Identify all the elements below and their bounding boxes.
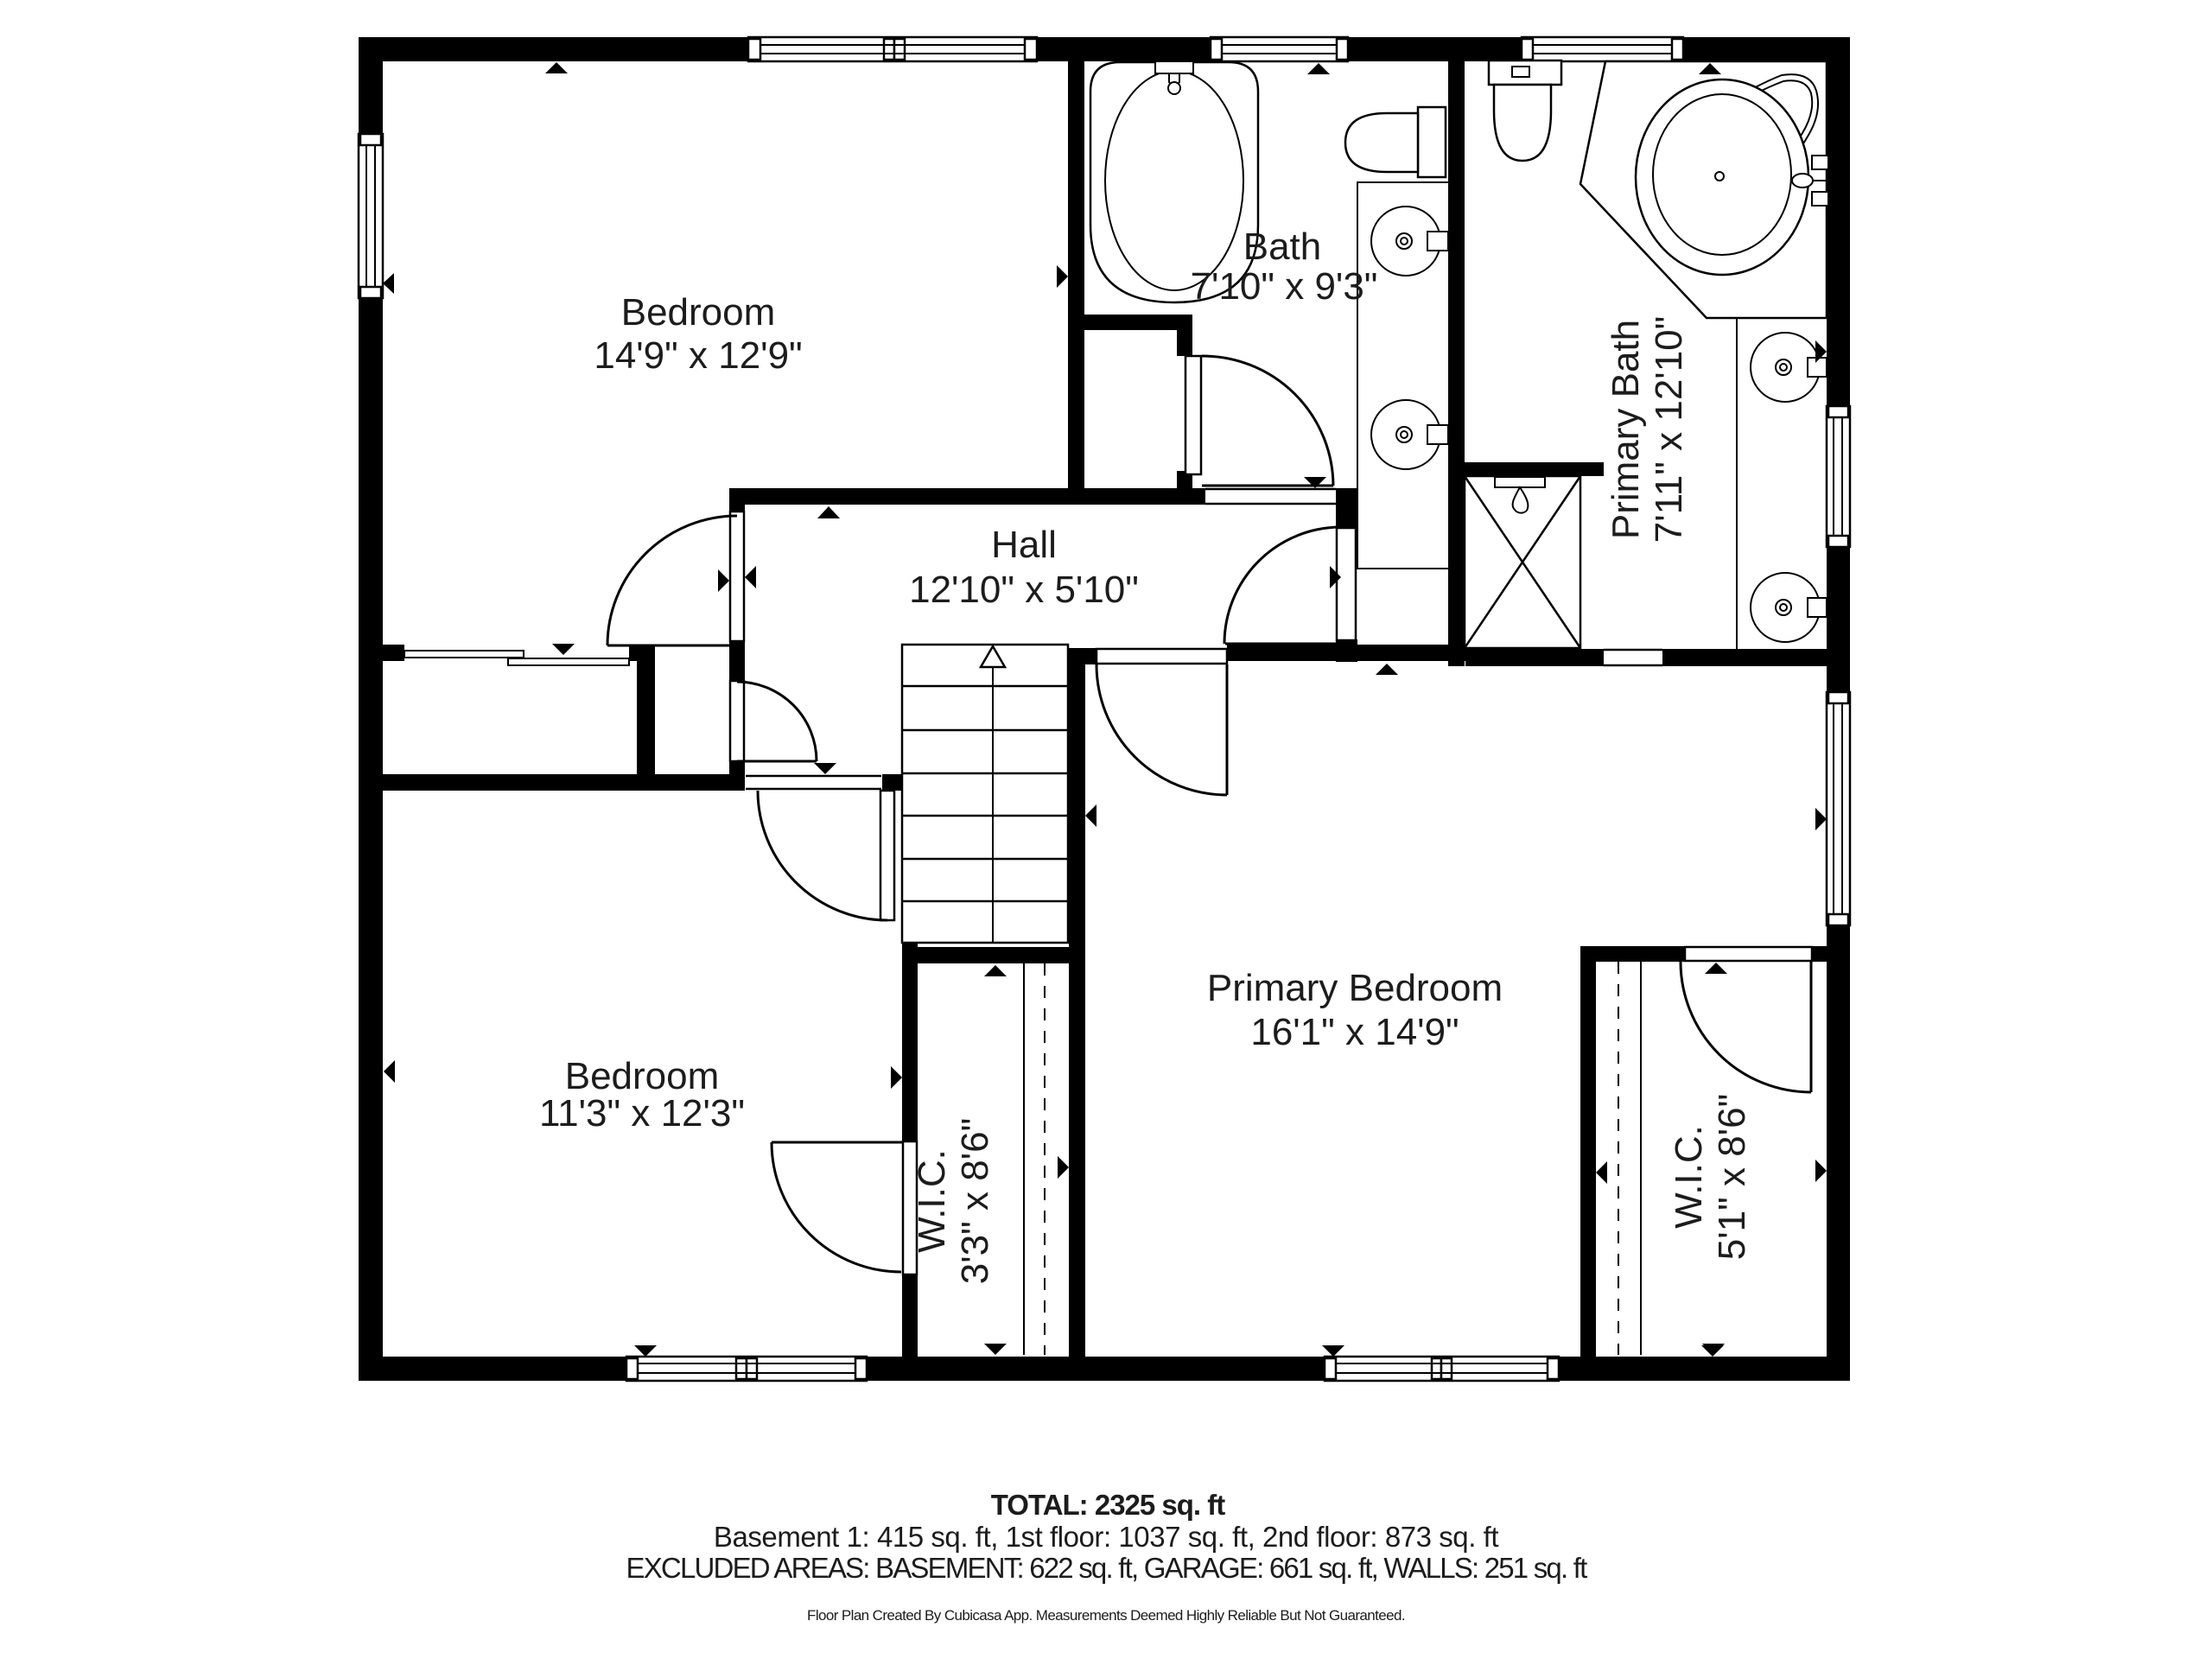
svg-text:W.I.C.: W.I.C.	[911, 1149, 953, 1253]
svg-text:Bath: Bath	[1243, 226, 1322, 268]
svg-text:Floor Plan Created By Cubicasa: Floor Plan Created By Cubicasa App. Meas…	[807, 1607, 1405, 1624]
svg-text:11'3" x 12'3": 11'3" x 12'3"	[539, 1092, 745, 1135]
svg-text:Bedroom: Bedroom	[621, 291, 776, 334]
svg-text:Primary Bedroom: Primary Bedroom	[1207, 967, 1503, 1009]
svg-text:3'3" x 8'6": 3'3" x 8'6"	[954, 1118, 996, 1284]
svg-text:Primary Bath: Primary Bath	[1605, 320, 1647, 539]
svg-text:TOTAL: 2325 sq. ft: TOTAL: 2325 sq. ft	[991, 1489, 1226, 1521]
svg-text:12'10" x 5'10": 12'10" x 5'10"	[909, 569, 1139, 611]
svg-text:Bedroom: Bedroom	[565, 1055, 720, 1097]
svg-text:7'10" x 9'3": 7'10" x 9'3"	[1191, 265, 1378, 308]
svg-text:Basement 1: 415 sq. ft, 1st fl: Basement 1: 415 sq. ft, 1st floor: 1037 …	[714, 1521, 1498, 1553]
svg-text:Hall: Hall	[991, 524, 1057, 566]
svg-text:EXCLUDED AREAS: BASEMENT: 622: EXCLUDED AREAS: BASEMENT: 622 sq. ft, GA…	[626, 1552, 1588, 1584]
svg-text:7'11" x 12'10": 7'11" x 12'10"	[1648, 316, 1690, 543]
svg-text:16'1" x 14'9": 16'1" x 14'9"	[1250, 1011, 1459, 1053]
svg-text:5'1" x 8'6": 5'1" x 8'6"	[1711, 1094, 1753, 1260]
svg-text:14'9" x 12'9": 14'9" x 12'9"	[594, 334, 802, 377]
svg-text:W.I.C.: W.I.C.	[1668, 1125, 1710, 1229]
